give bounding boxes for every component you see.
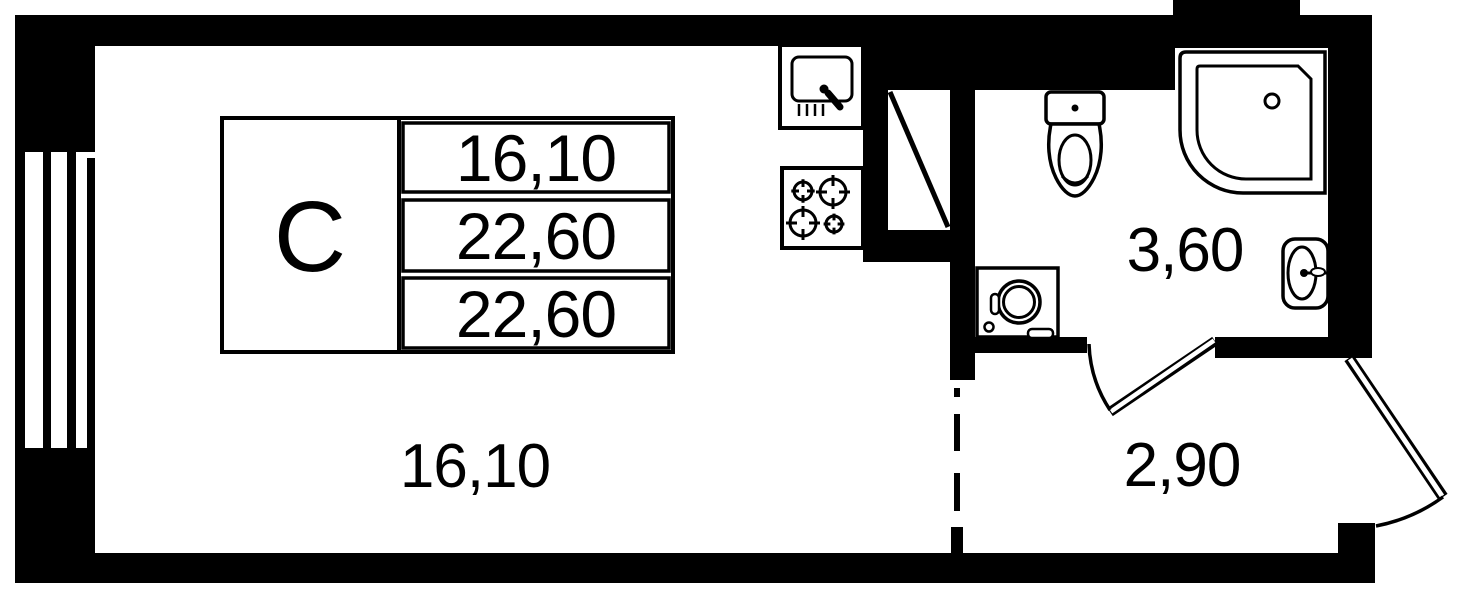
wall-left-bottom-block bbox=[15, 448, 95, 583]
wall-vent-bottom bbox=[863, 230, 950, 262]
stove-icon bbox=[782, 168, 863, 248]
legend-area-row-2: 22,60 bbox=[456, 199, 616, 273]
room-divider-dashed-line bbox=[951, 388, 963, 553]
wall-top-bathroom bbox=[1175, 15, 1328, 48]
shower-tray-icon bbox=[1180, 52, 1325, 193]
legend-area-row-1: 16,10 bbox=[456, 121, 616, 195]
washbasin-icon bbox=[1283, 239, 1328, 308]
faucet-icon bbox=[1300, 269, 1308, 277]
bathroom-door-icon bbox=[1089, 341, 1215, 413]
wall-bathroom-bottom-left bbox=[950, 337, 1087, 353]
wall-vent-left bbox=[863, 46, 888, 262]
wall-bathroom-left bbox=[950, 88, 975, 380]
door-swing-arc bbox=[1089, 344, 1110, 410]
wall-top-outer-step bbox=[1173, 0, 1300, 16]
floor-plan: С 16,10 22,60 22,60 16,10 3,60 2,90 bbox=[0, 0, 1481, 600]
ventilation-shaft-icon bbox=[890, 92, 948, 227]
wall-left-top-block bbox=[15, 15, 95, 152]
wall-top bbox=[15, 15, 865, 46]
room-label-living-area: 16,10 bbox=[400, 432, 550, 501]
entrance-door-icon bbox=[1349, 358, 1443, 526]
wall-bottom bbox=[93, 553, 1375, 583]
legend-table: С 16,10 22,60 22,60 bbox=[222, 118, 673, 352]
entrance-door-jamb bbox=[1338, 523, 1375, 560]
wall-bathroom-bottom-right bbox=[1215, 337, 1372, 358]
wall-top-thick-kitchen bbox=[863, 15, 1175, 90]
toilet-icon bbox=[1046, 92, 1104, 196]
kitchen-sink-icon bbox=[780, 45, 863, 128]
legend-area-row-3: 22,60 bbox=[456, 277, 616, 351]
drain-icon bbox=[1265, 94, 1279, 108]
washing-machine-icon bbox=[977, 268, 1058, 338]
room-label-hallway-area: 2,90 bbox=[1124, 431, 1241, 500]
window-icon bbox=[15, 150, 95, 458]
room-label-bathroom-area: 3,60 bbox=[1127, 216, 1244, 285]
floor-plan-page: С 16,10 22,60 22,60 16,10 3,60 2,90 bbox=[0, 0, 1481, 600]
wall-right bbox=[1328, 15, 1372, 358]
door-swing-arc bbox=[1376, 497, 1443, 526]
legend-unit-type: С bbox=[274, 181, 346, 293]
